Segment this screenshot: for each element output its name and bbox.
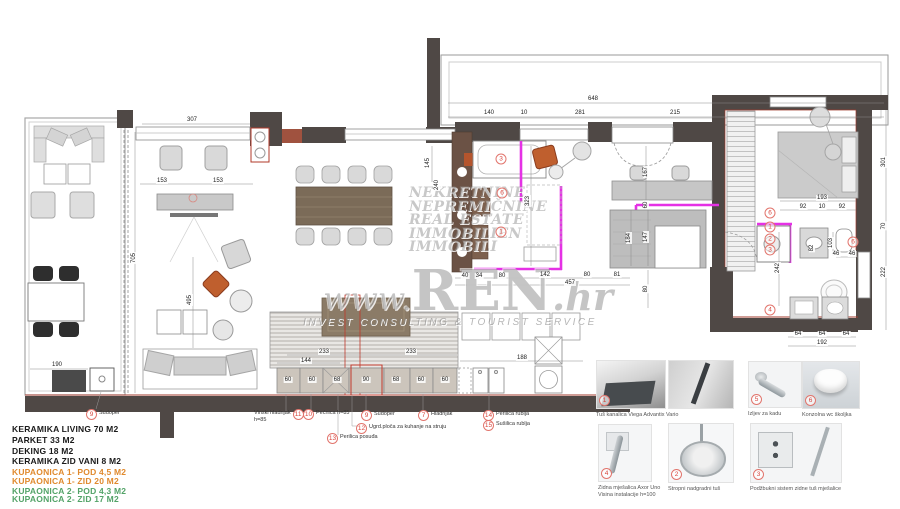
legend-item: PARKET 33 M2: [12, 435, 75, 445]
dimension-label: 147: [643, 231, 649, 243]
dimension-label: 142: [539, 272, 551, 278]
appliance-text: Sudoper: [99, 409, 120, 417]
fireplace: [610, 210, 706, 268]
appliance-text: Sudoper: [374, 410, 395, 418]
dimension-label: 192: [816, 340, 828, 346]
appliance-text: Sušilica rublja: [496, 420, 530, 428]
dimension-label: 233: [318, 349, 330, 355]
dimension-label: 323: [525, 195, 531, 207]
floor-plan-page: NEKRETNINE NEPREMIČNINE REAL ESTATE IMMO…: [0, 0, 900, 509]
dimension-label: 281: [574, 110, 586, 116]
product-caption: Zidna mješalica Axor UnoVisina instalaci…: [598, 485, 650, 499]
dimension-label: 10: [818, 204, 827, 210]
dimension-label: 60: [417, 377, 426, 383]
dimension-label: 184: [626, 232, 632, 244]
product-photo: 4: [598, 424, 652, 482]
product-number: 4: [601, 468, 612, 479]
product-caption: Tuš kanalica Viega Advantix Vario: [596, 412, 664, 419]
entrance-door: [612, 127, 673, 166]
dimension-label: 10: [520, 110, 529, 116]
appliance-number: 9: [361, 410, 372, 421]
appliance-label: 7 Hladnjak: [418, 410, 452, 421]
entry-reading-corner: [524, 142, 591, 261]
dimension-label: 68: [333, 377, 342, 383]
appliance-label: 10 Pećnica h=85: [303, 409, 349, 420]
dimension-label: 103: [828, 237, 834, 249]
product-photo: [668, 360, 734, 409]
dimension-label: 495: [187, 294, 193, 306]
product-caption: Podžbukni sistem zidne tuš mješalice: [750, 486, 840, 493]
product-photo: 3: [750, 423, 842, 483]
dimension-label: 301: [881, 156, 887, 168]
product-tile: 1 Tuš kanalica Viega Advantix Vario: [596, 360, 664, 419]
plan-marker: 3: [496, 154, 507, 165]
dimension-label: 64: [818, 331, 827, 337]
product-tile: 3 Podžbukni sistem zidne tuš mješalice: [750, 423, 840, 493]
dimension-label: 60: [643, 201, 649, 210]
product-tile: [668, 360, 732, 409]
product-caption: Izljev za kadu: [748, 411, 800, 418]
dimension-label: 68: [392, 377, 401, 383]
dimension-label: 167: [643, 166, 649, 178]
dimension-label: 457: [564, 280, 576, 286]
appliance-number: 13: [327, 433, 338, 444]
product-number: 5: [751, 394, 762, 405]
plan-marker: 2: [765, 234, 776, 245]
appliance-number: 9: [86, 409, 97, 420]
appliance-number: 7: [418, 410, 429, 421]
dimension-label: 64: [842, 331, 851, 337]
dimension-label: 92: [799, 204, 808, 210]
appliance-number: 10: [303, 409, 314, 420]
dimension-label: 242: [775, 262, 781, 274]
product-photo: 6: [802, 361, 860, 409]
plan-marker: 3: [765, 245, 776, 256]
legend-item: KERAMIKA ZID VANI 8 M2: [12, 456, 121, 466]
dimension-label: 80: [583, 272, 592, 278]
dimension-label: 188: [516, 355, 528, 361]
plan-marker: 6: [765, 208, 776, 219]
appliance-label: 13 Perilica posuđa: [327, 433, 378, 444]
dimension-label: 144: [300, 358, 312, 364]
dimension-label: 64: [794, 331, 803, 337]
product-number: 1: [599, 395, 610, 406]
product-tile: 6 Konzolna wc školjka: [802, 361, 858, 419]
dimension-label: 233: [405, 349, 417, 355]
product-tile: 4 Zidna mješalica Axor UnoVisina instala…: [598, 424, 650, 499]
dining-set: [296, 166, 392, 245]
product-photo: 2: [668, 423, 734, 483]
dimension-label: 40: [461, 273, 470, 279]
appliance-number: 15: [483, 420, 494, 431]
product-number: 3: [753, 469, 764, 480]
dimension-label: 60: [284, 377, 293, 383]
plan-marker: 6: [497, 188, 508, 199]
dimension-label: 705: [131, 252, 137, 264]
desk: [612, 166, 712, 200]
dimension-label: 222: [881, 266, 887, 278]
legend-item: DEKING 18 M2: [12, 446, 73, 456]
dimension-label: 92: [838, 204, 847, 210]
dimension-label: 46: [848, 251, 857, 257]
appliance-text: Pećnica h=85: [316, 409, 349, 417]
dimension-label: 46: [832, 251, 841, 257]
appliance-label: 11 Vinski hladnjakh=85: [254, 409, 304, 424]
cooktop: [251, 128, 269, 162]
dimension-label: 240: [434, 179, 440, 191]
dimension-label: 82: [809, 244, 815, 253]
appliance-label: 9 Sudoper: [86, 409, 120, 420]
plan-marker: 6: [848, 237, 859, 248]
dimension-label: 140: [483, 110, 495, 116]
dimension-label: 80: [498, 273, 507, 279]
appliance-text: Hladnjak: [431, 410, 452, 418]
appliance-label: 15 Sušilica rublja: [483, 420, 530, 431]
appliance-text: Perilica rublja: [496, 410, 529, 418]
product-photo: 5: [748, 361, 802, 408]
dimension-label: 648: [587, 96, 599, 102]
dimension-label: 81: [613, 272, 622, 278]
appliance-text: Ugrd.ploča za kuhanje na struju: [369, 423, 446, 431]
dimension-label: 80: [643, 285, 649, 294]
product-number: 6: [805, 395, 816, 406]
legend-item: KUPAONICA 2- ZID 17 M2: [12, 494, 119, 504]
dimension-label: 190: [51, 362, 63, 368]
dimension-label: 34: [475, 273, 484, 279]
dimension-label: 90: [362, 377, 371, 383]
product-caption: Konzolna wc školjka: [802, 412, 858, 419]
appliance-label: 9 Sudoper: [361, 410, 395, 421]
dimension-label: 193: [816, 195, 828, 201]
product-caption: Stropni nadgradni tuš: [668, 486, 732, 493]
appliance-number: 11: [293, 409, 304, 420]
product-tile: 2 Stropni nadgradni tuš: [668, 423, 732, 493]
legend-item: KERAMIKA LIVING 70 M2: [12, 424, 118, 434]
dimension-label: 307: [186, 117, 198, 123]
product-number: 2: [671, 469, 682, 480]
plan-marker: 1: [496, 227, 507, 238]
legend-item: KUPAONICA 1- ZID 20 M2: [12, 476, 119, 486]
appliance-text: Perilica posuđa: [340, 433, 378, 441]
dimension-label: 60: [308, 377, 317, 383]
dimension-label: 153: [156, 178, 168, 184]
dimension-label: 215: [669, 110, 681, 116]
dimension-label: 153: [212, 178, 224, 184]
dimension-label: 60: [441, 377, 450, 383]
product-tile: 5 Izljev za kadu: [748, 361, 800, 418]
plan-marker: 1: [765, 222, 776, 233]
product-photo: 1: [596, 360, 666, 409]
dimension-label: 70: [881, 222, 887, 231]
appliance-text: Vinski hladnjakh=85: [254, 409, 291, 424]
dimension-label: 145: [425, 157, 431, 169]
plan-marker: 4: [765, 305, 776, 316]
